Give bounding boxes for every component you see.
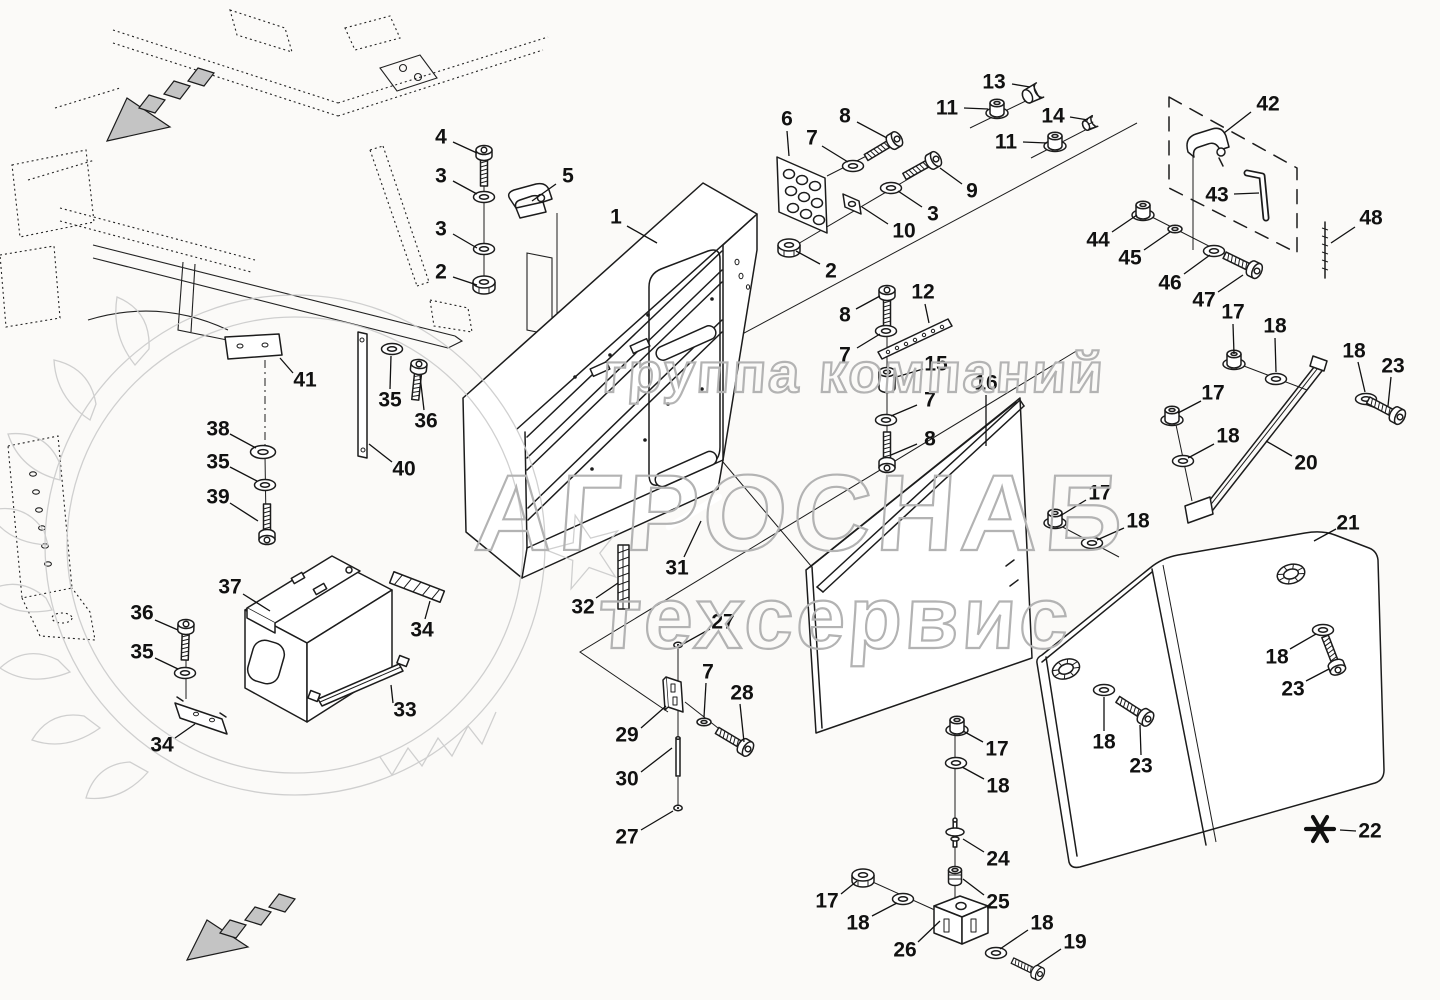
callout-leader-29 <box>641 706 666 728</box>
callout-label-12: 12 <box>911 281 934 304</box>
callout-leader-18 <box>1275 338 1276 372</box>
tab-plate-part-10 <box>843 194 861 214</box>
callout-label-18: 18 <box>1030 912 1054 935</box>
callout-leader-18 <box>872 903 897 916</box>
part-dot-icon <box>674 805 682 810</box>
callout-label-18: 18 <box>846 912 870 935</box>
callout-label-18: 18 <box>1342 340 1366 363</box>
callout-label-18: 18 <box>1263 315 1287 338</box>
callout-label-37: 37 <box>218 576 241 599</box>
callout-label-11: 11 <box>995 131 1018 154</box>
callout-leader-18 <box>1358 362 1365 392</box>
callout-leader-17 <box>1178 401 1201 413</box>
callout-label-43: 43 <box>1205 184 1228 207</box>
part-washer-icon <box>843 161 864 172</box>
callout-leader-40 <box>369 444 392 462</box>
direction-arrow-bottom <box>187 894 295 960</box>
callout-label-8: 8 <box>924 428 936 451</box>
part-bolt_h-icon <box>901 150 944 184</box>
callout-leader-28 <box>740 704 744 742</box>
callout-leader-19 <box>1036 949 1061 966</box>
cotter-pin-part-48 <box>1322 222 1328 278</box>
callout-leader-24 <box>963 839 984 852</box>
part-flange_nut-icon <box>1044 132 1066 151</box>
parts-diagram-page: 4332516781311141193102424348444546471718… <box>0 0 1440 1000</box>
callout-leader-3 <box>898 191 922 207</box>
callout-label-23: 23 <box>1129 755 1152 778</box>
callout-leader-48 <box>1331 227 1355 243</box>
kit-box-dashed <box>1169 97 1297 253</box>
callout-label-17: 17 <box>815 890 838 913</box>
callout-leader-9 <box>940 168 962 184</box>
callout-label-27: 27 <box>615 826 638 849</box>
asterisk-footnote <box>1306 817 1334 841</box>
callout-label-3: 3 <box>435 218 447 241</box>
exploded-parts-diagram: 4332516781311141193102424348444546471718… <box>0 0 1440 1000</box>
callout-label-4: 4 <box>435 126 447 149</box>
callout-leader-2 <box>796 251 820 264</box>
part-washer-icon <box>946 758 967 769</box>
callout-leader-20 <box>1266 441 1292 456</box>
callout-label-1: 1 <box>610 206 622 229</box>
callout-leader-18 <box>1188 444 1214 458</box>
watermark-line-2: АГРОСНАБ <box>471 452 1133 573</box>
mounting-plate-part-41 <box>225 334 282 449</box>
callout-label-10: 10 <box>892 220 915 243</box>
callout-leader-36 <box>155 620 178 630</box>
callout-leader-22 <box>1340 830 1356 831</box>
part-washer-icon <box>986 948 1007 959</box>
callout-label-22: 22 <box>1358 820 1381 843</box>
part-bolt_h-icon <box>1364 393 1407 426</box>
callout-label-46: 46 <box>1158 272 1181 295</box>
callout-label-7: 7 <box>806 127 818 150</box>
callout-leader-25 <box>963 879 984 895</box>
callout-leader-39 <box>230 503 258 521</box>
callout-label-42: 42 <box>1256 93 1279 116</box>
callout-label-29: 29 <box>615 724 638 747</box>
callout-leader-27 <box>641 811 673 830</box>
callout-leader-11 <box>1023 142 1047 143</box>
callout-label-6: 6 <box>781 108 793 131</box>
callout-label-36: 36 <box>130 602 153 625</box>
part-washer-icon <box>1094 685 1115 696</box>
part-bolt_h-icon <box>1010 954 1047 981</box>
part-flange_nut-icon <box>1161 406 1183 425</box>
callout-label-3: 3 <box>927 203 939 226</box>
part-bolt_v-icon <box>476 146 492 187</box>
part-bolt_h-icon <box>862 130 905 165</box>
part-pin24-icon <box>946 818 964 847</box>
part-bolt_v-icon <box>259 504 275 545</box>
u-bracket-part-26 <box>934 896 988 944</box>
callout-label-34: 34 <box>410 619 434 642</box>
callout-leader-8 <box>856 296 880 309</box>
callout-leader-7 <box>704 683 706 717</box>
callout-label-45: 45 <box>1118 247 1142 270</box>
callout-leader-18 <box>962 767 984 779</box>
callout-leader-13 <box>1012 84 1030 87</box>
callout-label-9: 9 <box>966 180 978 203</box>
callout-leader-18 <box>1000 930 1028 949</box>
part-bolt_v-icon <box>879 286 895 327</box>
part-washer-icon <box>876 415 897 426</box>
callout-label-35: 35 <box>206 451 230 474</box>
bracket-part-34-left <box>175 697 227 734</box>
machine-frame-sketch <box>0 10 552 640</box>
part-nut-icon <box>778 239 800 257</box>
callout-label-18: 18 <box>1265 646 1289 669</box>
callout-label-39: 39 <box>206 486 229 509</box>
callout-label-23: 23 <box>1281 678 1304 701</box>
callout-label-33: 33 <box>393 699 416 722</box>
callout-label-36: 36 <box>414 410 437 433</box>
callout-label-41: 41 <box>293 369 317 392</box>
hex-key-part-43 <box>1247 173 1266 218</box>
part-washer-icon <box>255 480 276 491</box>
callout-label-11: 11 <box>936 97 959 120</box>
callout-label-23: 23 <box>1381 355 1404 378</box>
callout-label-18: 18 <box>1126 510 1150 533</box>
callout-leader-8 <box>857 122 887 138</box>
callout-label-8: 8 <box>839 105 851 128</box>
callout-leader-4 <box>453 142 477 153</box>
callout-label-40: 40 <box>392 458 415 481</box>
callout-leader-17 <box>963 731 983 742</box>
callout-leader-10 <box>862 207 888 224</box>
latch-clip-part-5 <box>509 184 552 218</box>
callout-leader-14 <box>1070 117 1088 120</box>
callout-label-44: 44 <box>1086 229 1110 252</box>
callout-label-2: 2 <box>435 261 447 284</box>
callout-leader-3 <box>453 181 477 194</box>
clamp-strip-part-34-right <box>390 572 445 603</box>
callout-leader-36 <box>420 376 424 410</box>
callout-label-47: 47 <box>1192 289 1215 312</box>
side-cover-part-21 <box>1037 532 1384 868</box>
callout-leader-34 <box>425 601 430 619</box>
callout-label-48: 48 <box>1359 207 1383 230</box>
direction-arrow-top <box>107 68 214 141</box>
part-bolt_v-icon <box>407 359 427 401</box>
part-flange_nut-icon <box>1132 201 1154 220</box>
callout-label-20: 20 <box>1294 452 1317 475</box>
callout-label-2: 2 <box>825 260 837 283</box>
callout-leader-12 <box>925 304 929 323</box>
callout-leader-11 <box>964 108 988 109</box>
callout-label-3: 3 <box>435 165 447 188</box>
callout-label-38: 38 <box>206 418 230 441</box>
perforated-plate-part-6 <box>777 157 827 233</box>
callout-leader-41 <box>280 358 293 373</box>
callout-label-17: 17 <box>985 738 1008 761</box>
callout-label-26: 26 <box>893 939 916 962</box>
callout-label-17: 17 <box>1221 301 1244 324</box>
part-bolt_h-icon <box>713 724 756 759</box>
part-plug-icon <box>1081 116 1098 133</box>
part-washer-icon <box>1204 246 1225 257</box>
callout-label-5: 5 <box>562 165 574 188</box>
callout-leader-47 <box>1218 275 1243 292</box>
part-washer-icon <box>474 244 495 255</box>
callout-label-30: 30 <box>615 768 638 791</box>
part-washer-icon <box>893 894 914 905</box>
callout-label-18: 18 <box>1092 731 1116 754</box>
callout-leader-7 <box>822 146 848 162</box>
part-washer-icon <box>382 344 403 355</box>
callout-leader-45 <box>1144 232 1170 250</box>
callout-label-18: 18 <box>986 775 1010 798</box>
part-bolt_v-icon <box>177 619 194 660</box>
callout-leader-6 <box>787 131 789 156</box>
callout-label-35: 35 <box>130 641 154 664</box>
callout-label-13: 13 <box>982 71 1005 94</box>
callout-leader-46 <box>1184 255 1210 274</box>
part-washer_s-icon <box>1168 225 1182 233</box>
callout-leader-7 <box>891 405 917 416</box>
callout-label-18: 18 <box>1216 425 1240 448</box>
callout-label-19: 19 <box>1063 931 1086 954</box>
part-pin30-icon <box>676 737 680 776</box>
side-strip-part-40 <box>358 332 367 458</box>
callout-label-34: 34 <box>150 734 174 757</box>
callout-leader-17 <box>841 881 857 894</box>
callout-leader-30 <box>641 748 672 772</box>
callout-leader-42 <box>1224 112 1251 133</box>
callout-leader-34 <box>175 724 195 738</box>
callout-label-24: 24 <box>986 848 1010 871</box>
watermark-line-3: техсервис <box>595 568 1075 667</box>
part-flange_nut-icon <box>986 99 1008 118</box>
callout-leader-3 <box>453 234 477 248</box>
callout-label-8: 8 <box>839 304 851 327</box>
callout-label-14: 14 <box>1041 105 1065 128</box>
callout-label-28: 28 <box>730 682 754 705</box>
callout-label-25: 25 <box>986 891 1010 914</box>
part-washer-icon <box>1266 374 1287 385</box>
part-bush-icon <box>949 867 962 886</box>
callout-leader-23 <box>1388 377 1391 406</box>
part-nut-icon <box>852 869 874 887</box>
callout-leader-35 <box>155 658 178 669</box>
callout-leader-44 <box>1112 215 1137 232</box>
callout-label-17: 17 <box>1201 382 1224 405</box>
callout-leader-43 <box>1234 193 1259 194</box>
callout-leader-38 <box>230 434 256 448</box>
part-washer_s-icon <box>697 718 711 726</box>
callout-leader-35 <box>230 467 257 481</box>
callout-leader-35 <box>390 356 391 389</box>
callout-label-32: 32 <box>571 596 594 619</box>
watermark-line-1: группа компаний <box>601 341 1107 404</box>
callout-label-21: 21 <box>1336 512 1360 535</box>
callout-label-35: 35 <box>378 389 402 412</box>
